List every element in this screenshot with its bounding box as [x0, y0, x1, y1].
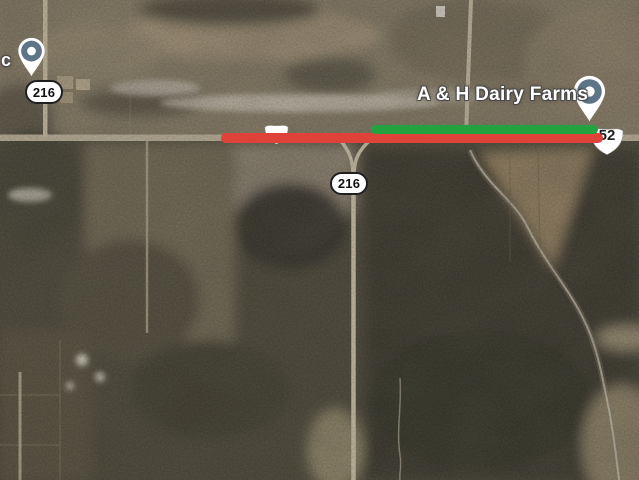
- route-shield-216-number: 216: [33, 85, 55, 100]
- route-shield-216-center: 216: [330, 172, 368, 195]
- map-viewport[interactable]: 52 216 216 A & H Dairy Farms c: [0, 0, 639, 480]
- route-shield-216-number: 216: [338, 176, 360, 191]
- place-marker-pin[interactable]: [15, 36, 48, 78]
- map-pin-icon: [15, 36, 48, 78]
- satellite-imagery: [0, 0, 639, 480]
- poi-label-dairy-farms[interactable]: A & H Dairy Farms: [417, 84, 588, 106]
- traffic-line-free-flow: [371, 125, 598, 134]
- route-shield-216-northwest: 216: [25, 80, 63, 104]
- traffic-line-congested: [221, 133, 603, 143]
- poi-label-clipped: c: [1, 50, 11, 71]
